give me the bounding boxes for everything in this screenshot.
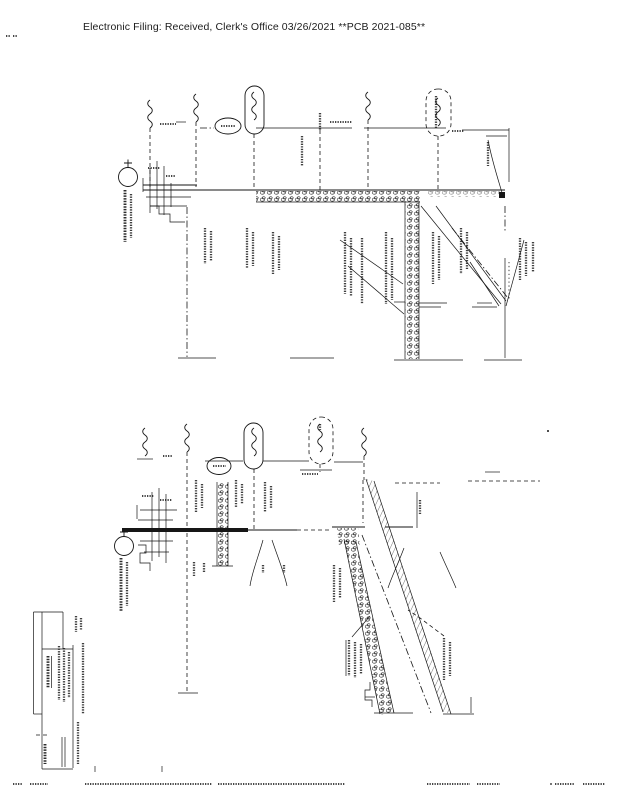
upper-grade-lines-bottom — [137, 456, 540, 483]
well-riser-symbols — [148, 92, 441, 190]
upper-grade-lines-top — [160, 122, 509, 166]
drawing-canvas — [0, 0, 618, 800]
footer-marks — [13, 766, 605, 785]
slope-bands-bottom — [337, 479, 451, 715]
berm-deck-and-structure-bottom — [122, 488, 365, 693]
ground-lines-top — [178, 358, 522, 360]
scan-speck-marks — [6, 36, 549, 432]
figure-top-cross-section — [119, 86, 534, 360]
title-block-text-marks — [45, 616, 83, 764]
riprap-column-bottom — [212, 482, 233, 566]
title-block — [34, 612, 84, 769]
berm-deck-and-structure-top — [143, 161, 505, 357]
callout-bubbles-top — [119, 86, 452, 242]
scanned-document-page: Electronic Filing: Received, Clerk's Off… — [0, 0, 618, 800]
label-mark-runs-bottom — [194, 424, 450, 680]
figure-bottom-cross-section — [115, 417, 541, 715]
